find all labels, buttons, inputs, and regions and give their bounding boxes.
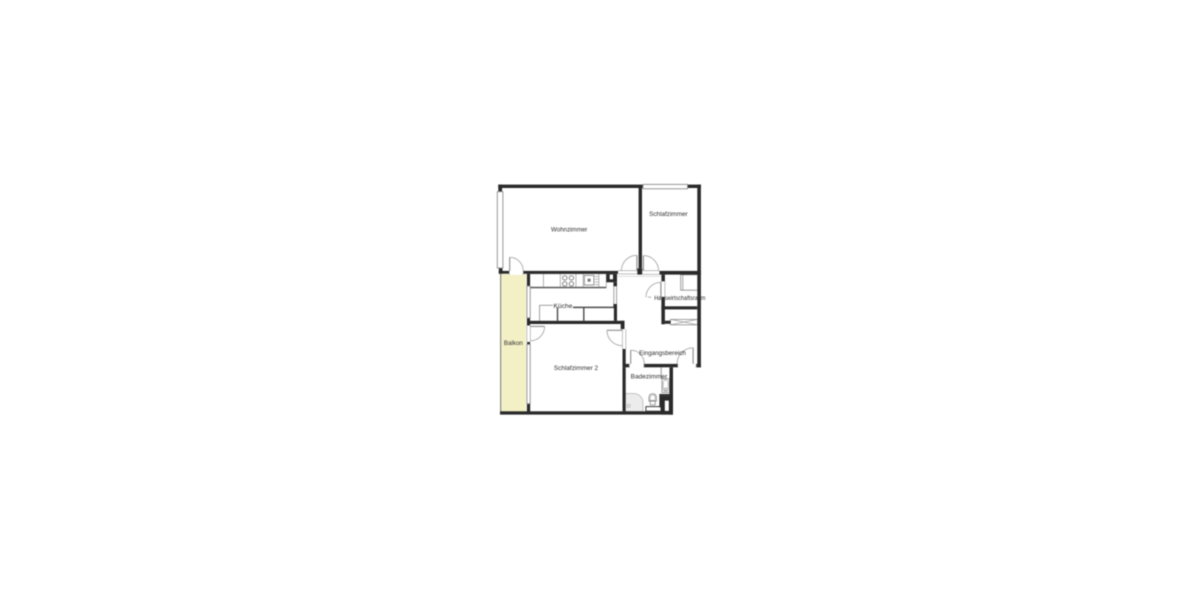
svg-text:Balkon: Balkon xyxy=(504,340,523,347)
svg-text:Hauswirtschaftsraum: Hauswirtschaftsraum xyxy=(654,295,705,302)
svg-text:Küche: Küche xyxy=(554,303,573,310)
svg-text:Schlafzimmer 2: Schlafzimmer 2 xyxy=(554,365,598,372)
svg-text:Wohnzimmer: Wohnzimmer xyxy=(551,227,588,234)
svg-text:Badezimmer: Badezimmer xyxy=(631,373,668,380)
svg-text:Eingangsbereich: Eingangsbereich xyxy=(639,350,686,357)
svg-text:Schlafzimmer: Schlafzimmer xyxy=(649,211,688,218)
